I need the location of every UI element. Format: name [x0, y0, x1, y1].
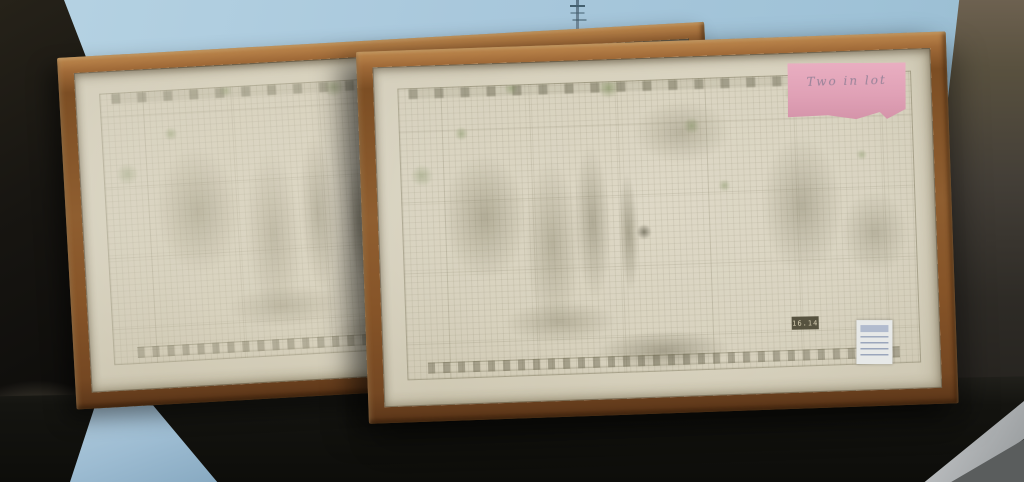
front-drawing-green-accents: [398, 72, 920, 380]
inventory-sticker: [856, 320, 892, 364]
sticky-note-text: Two in lot: [806, 73, 886, 89]
photo-scene: 16.14 Two in lot: [0, 0, 1024, 482]
sticky-note: Two in lot: [787, 62, 905, 121]
front-drawing-paper: 16.14 Two in lot: [373, 48, 943, 407]
front-picture-frame: 16.14 Two in lot: [356, 31, 959, 423]
plate-number: 16.14: [792, 316, 819, 329]
